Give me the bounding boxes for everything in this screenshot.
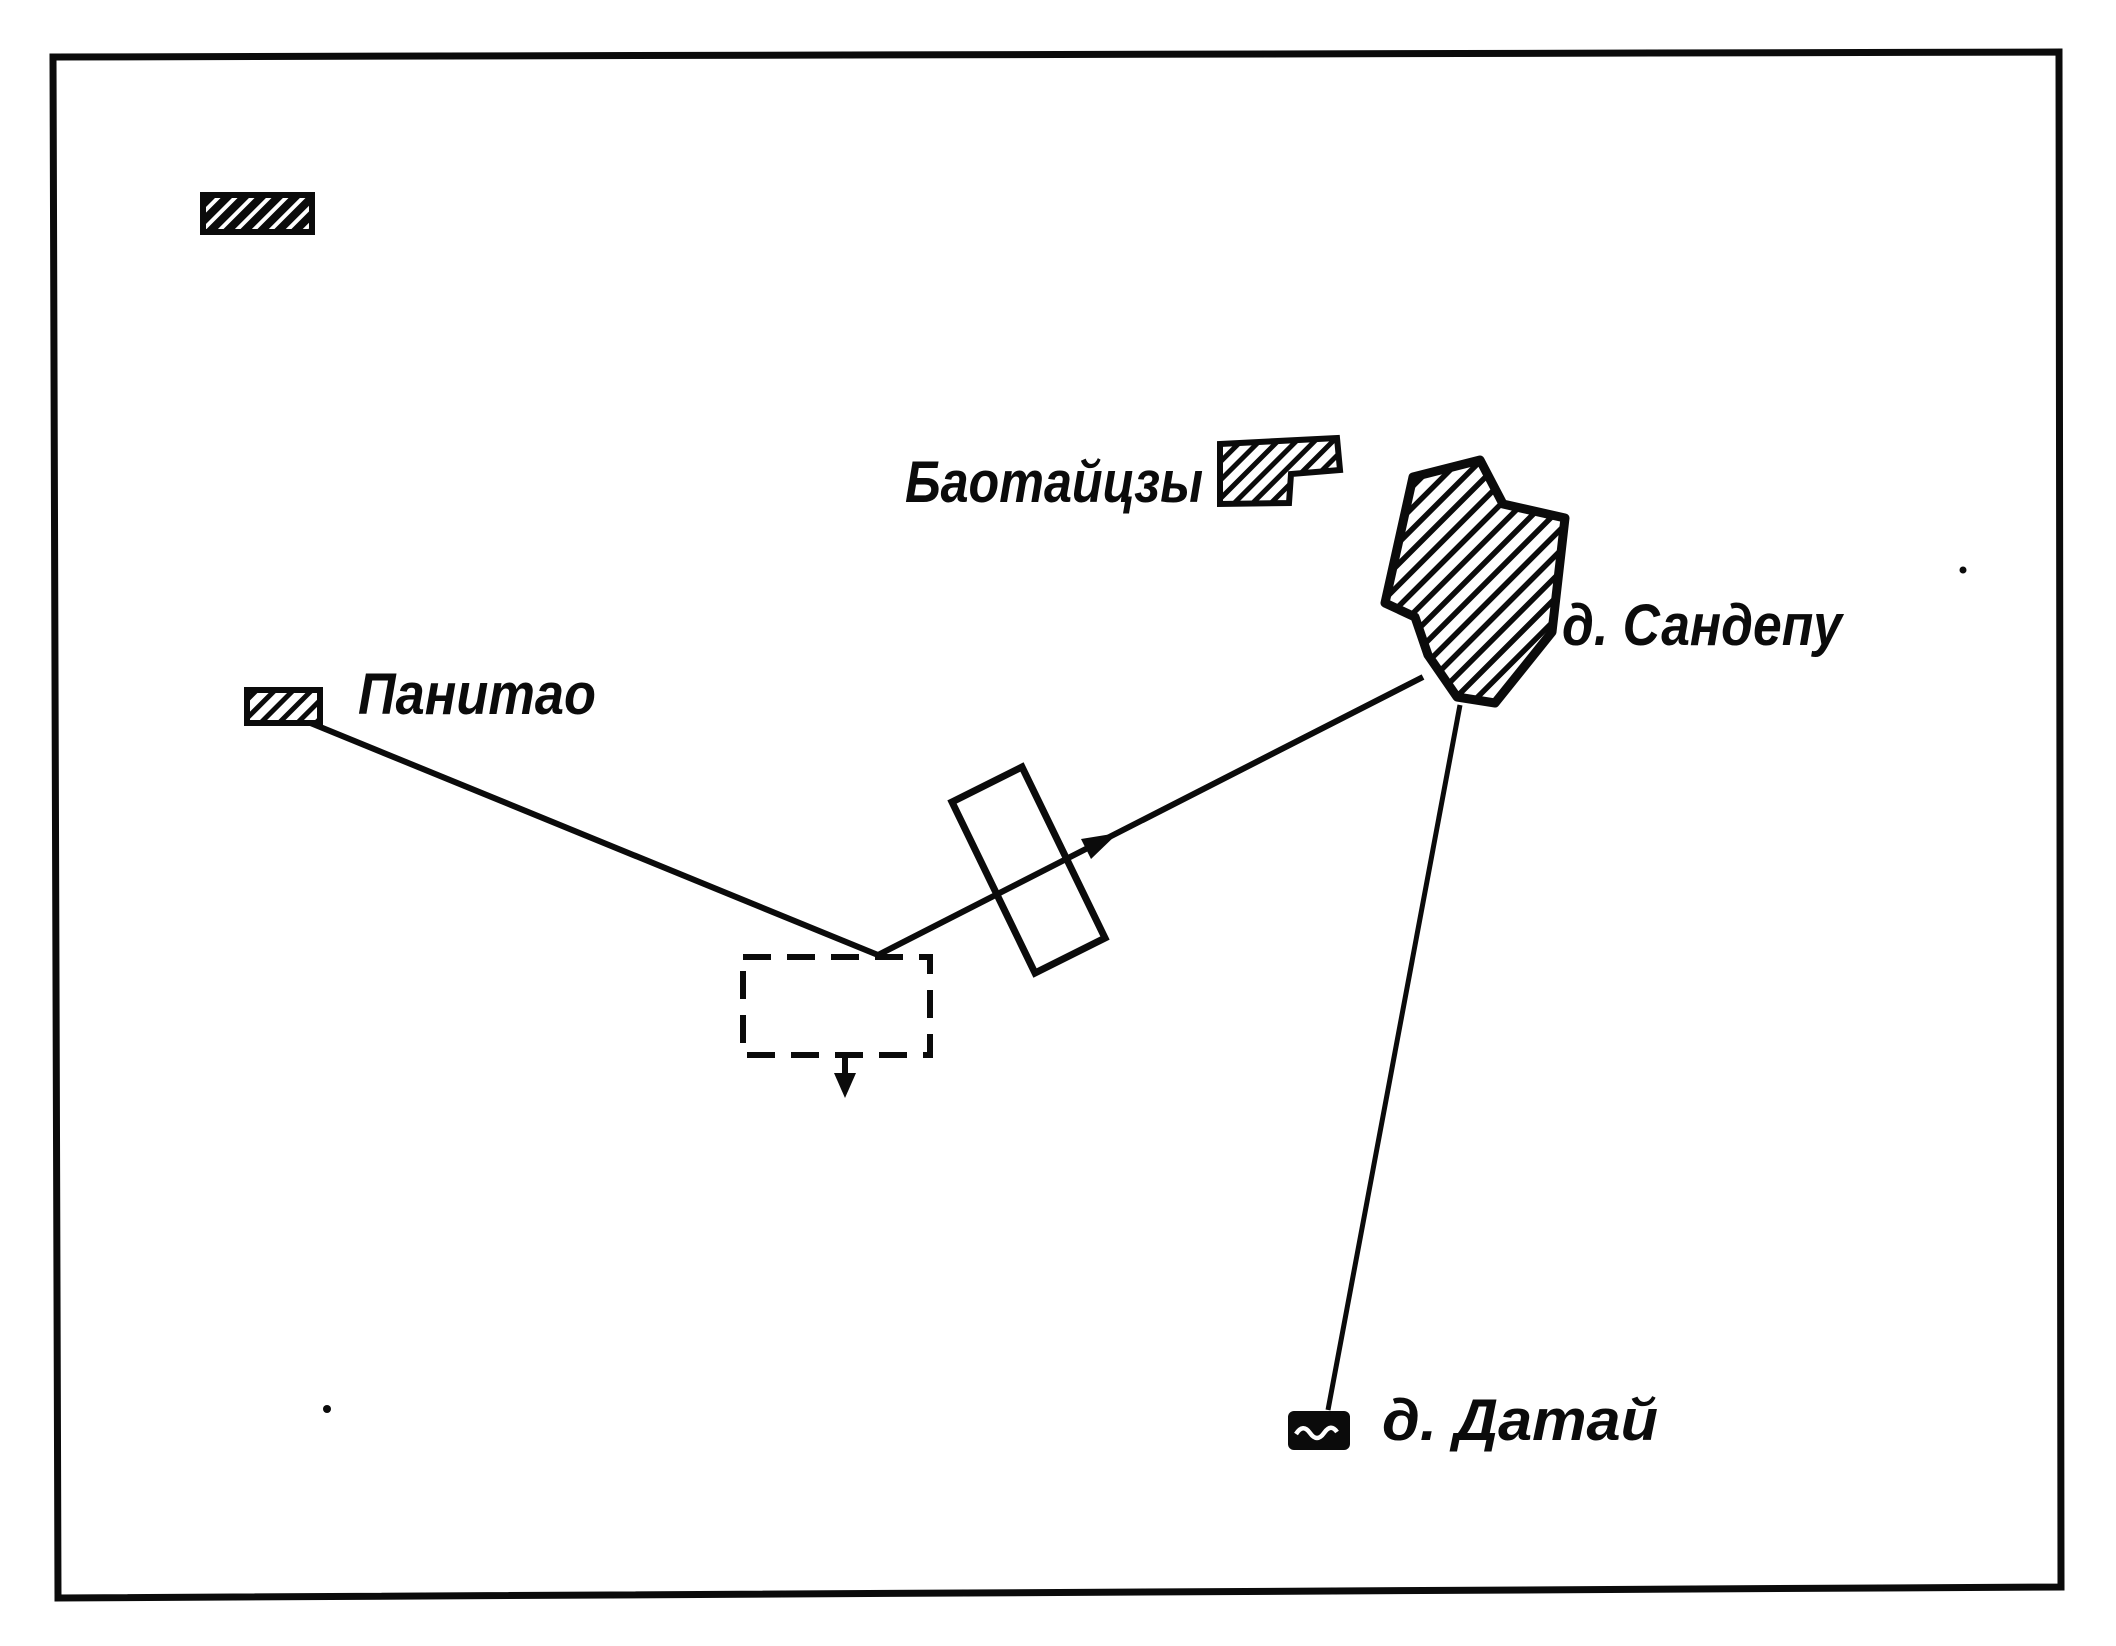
ink-speck bbox=[323, 1405, 331, 1413]
sketch-map-svg: Баотайцзы д. Сандепу Панитао д. Датай bbox=[0, 0, 2116, 1641]
route-line-panitao-to-junction bbox=[308, 722, 878, 955]
label-panitao: Панитао bbox=[358, 662, 596, 727]
route-arrowhead-icon bbox=[1081, 833, 1118, 859]
village-shape-panitao bbox=[247, 690, 320, 723]
village-shape-baotaitszy bbox=[1220, 438, 1340, 504]
village-shape-sandepu bbox=[1385, 460, 1565, 703]
line-sandepu-to-datai bbox=[1328, 705, 1460, 1410]
dashed-unit-rectangle bbox=[743, 957, 930, 1055]
down-arrow-icon bbox=[834, 1057, 856, 1098]
label-sandepu: д. Сандепу bbox=[1562, 593, 1844, 658]
legend-hatched-block bbox=[203, 195, 312, 232]
rotated-unit-rectangle bbox=[952, 767, 1105, 973]
label-datai: д. Датай bbox=[1382, 1388, 1658, 1453]
label-baotaitszy: Баотайцзы bbox=[905, 450, 1203, 515]
village-shape-datai bbox=[1288, 1411, 1350, 1450]
map-border bbox=[53, 52, 2061, 1598]
ink-speck bbox=[1960, 567, 1967, 574]
map-canvas: Баотайцзы д. Сандепу Панитао д. Датай bbox=[0, 0, 2116, 1641]
